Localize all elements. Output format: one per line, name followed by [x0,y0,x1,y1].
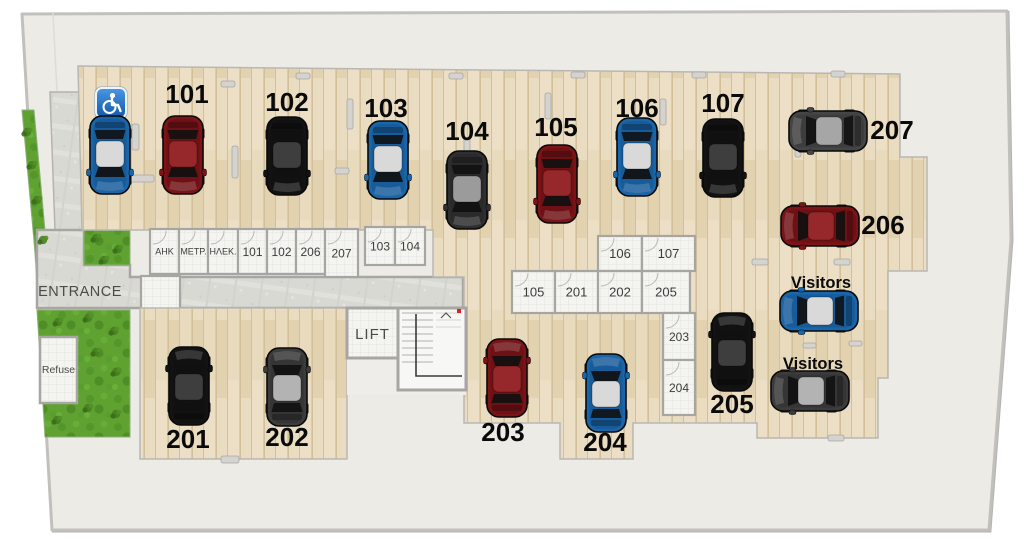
car-207 [789,108,867,155]
storage-room-label: 101 [242,245,262,259]
stall-label-105: 105 [534,112,577,142]
stall-label-106: 106 [615,93,658,123]
column-marker [130,175,154,182]
storage-room-label: 107 [658,246,680,261]
column-marker [828,435,844,441]
wheelchair-icon [95,87,128,120]
storage-room: 104 [395,227,425,265]
storage-room: ΑΗΚ [150,229,179,274]
column-marker [347,99,353,129]
storage-room-label: 207 [331,246,351,260]
column-marker [232,146,238,178]
car-203 [484,339,531,417]
column-marker [571,72,585,78]
storage-room: 107 [642,236,695,271]
column-marker [449,73,463,79]
stair-marker-dot [457,309,461,313]
column-marker [831,71,845,77]
car-104 [444,151,491,229]
storage-room: 207 [325,229,358,277]
stall-label-204: 204 [583,427,627,457]
stall-label-Visitors: Visitors [791,274,851,292]
storage-room: 204 [663,360,695,415]
storage-room-label: 203 [669,330,689,344]
stall-label-103: 103 [364,93,407,123]
column-marker [221,81,235,87]
lift-label: LIFT [355,326,390,343]
stall-label-203: 203 [481,417,524,447]
stall-label-Visitors: Visitors [783,355,843,373]
car-101 [160,116,207,194]
car-Visitors [780,288,858,335]
storage-room-label: 205 [655,285,677,300]
car-106 [614,118,661,196]
storage-room: ΜΕΤΡ. [179,229,208,274]
stall-label-104: 104 [445,116,489,146]
storage-room-label: 104 [400,239,420,253]
column-marker [834,259,850,265]
column-marker [296,73,310,79]
refuse-label: Refuse [42,364,75,376]
column-marker [692,72,706,78]
stall-label-101: 101 [165,79,208,109]
storage-room-label: 102 [271,245,291,259]
column-marker [221,456,239,463]
lift-stairs-block: LIFT [347,307,466,395]
storage-room: 203 [663,313,695,360]
car-105 [534,145,581,223]
car-102 [264,117,311,195]
storage-room: 105 [512,271,555,313]
storage-room-label: 202 [609,285,631,300]
storage-room-label: 103 [370,239,390,253]
car-204 [583,354,630,432]
floor-plan-svg: Refuse ΑΗΚΜΕΤΡ.ΗΛΕΚ.10110220620710310410… [0,0,1024,555]
car-107 [700,119,747,197]
stall-label-207: 207 [870,115,913,145]
storage-room-label: ΗΛΕΚ. [209,247,236,257]
parking-floor-plan: Refuse ΑΗΚΜΕΤΡ.ΗΛΕΚ.10110220620710310410… [0,0,1024,555]
storage-room: 201 [555,271,598,313]
stall-label-205: 205 [710,389,753,419]
stall-label-201: 201 [166,424,209,454]
column-marker [335,168,349,174]
car-205 [709,313,756,391]
car-202 [264,348,311,426]
storage-room: 103 [365,227,395,265]
storage-room-label: 204 [669,381,689,395]
storage-room: 106 [598,236,642,271]
storage-room: ΗΛΕΚ. [208,229,238,274]
storage-room-label: 106 [609,246,631,261]
storage-room: 205 [642,271,690,313]
stall-label-102: 102 [265,87,308,117]
car-206 [781,203,859,250]
stall-label-206: 206 [861,210,904,240]
storage-room: 206 [296,229,325,274]
column-marker [660,99,666,125]
storage-room: 202 [598,271,642,313]
entrance-label: ENTRANCE [38,284,122,300]
storage-room-label: ΜΕΤΡ. [180,247,206,257]
column-marker [803,343,816,348]
storage-room-label: 105 [523,285,545,300]
storage-room-label: 201 [566,285,588,300]
stall-label-107: 107 [701,88,744,118]
stall-label-202: 202 [265,422,308,452]
column-marker [132,124,139,150]
column-marker [849,341,862,346]
car-201 [166,347,213,425]
storage-room-label: ΑΗΚ [155,247,174,257]
car-103 [365,121,412,199]
storage-room: 102 [267,229,296,274]
column-marker [752,259,768,265]
car-Visitors [771,368,849,415]
car-accessible [87,116,134,194]
storage-room-label: 206 [300,245,320,259]
storage-room: 101 [238,229,267,274]
